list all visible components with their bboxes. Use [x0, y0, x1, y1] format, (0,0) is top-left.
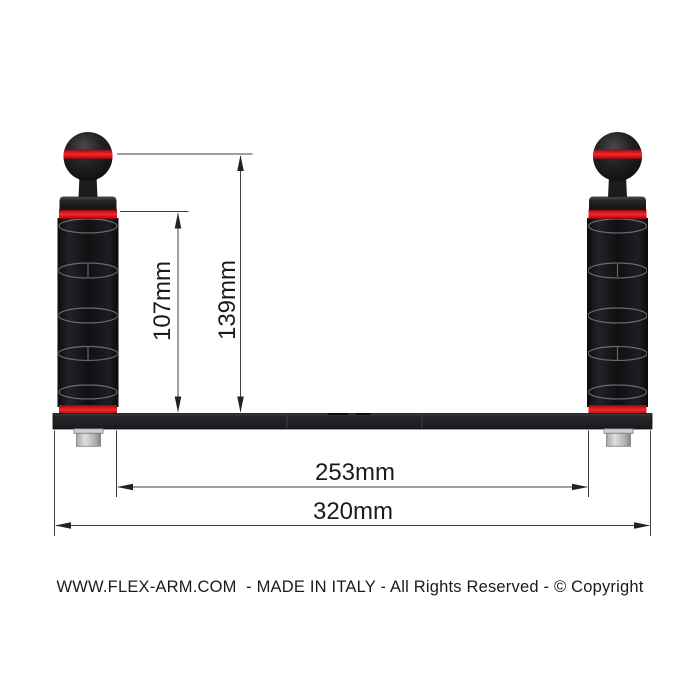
left-mount-bolt	[74, 429, 103, 447]
right-flex-handle	[588, 132, 648, 415]
dimension-label-107mm: 107mm	[151, 261, 175, 341]
right-mount-bolt	[604, 429, 633, 447]
product-diagram: 107mm 139mm 253mm 320mm WWW.FLEX-ARM.COM…	[0, 0, 700, 700]
tray-bar	[53, 413, 652, 429]
dimension-label-139mm: 139mm	[216, 260, 240, 340]
footer-copyright-text: WWW.FLEX-ARM.COM - MADE IN ITALY - All R…	[0, 578, 700, 597]
left-flex-handle	[58, 132, 118, 415]
dimension-label-253mm: 253mm	[315, 461, 395, 485]
dimension-label-320mm: 320mm	[313, 500, 393, 524]
